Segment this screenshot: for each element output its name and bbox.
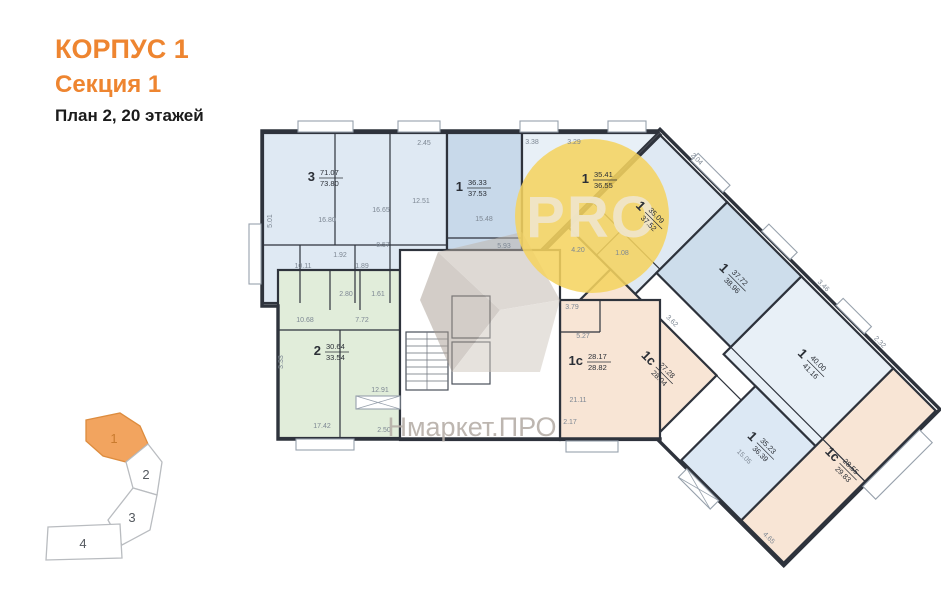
dimension-label: 3.79	[565, 304, 579, 311]
dimension-label: 10.68	[296, 317, 314, 324]
minimap-section-label: 1	[110, 431, 117, 446]
svg-text:71.07: 71.07	[320, 168, 339, 177]
dimension-label: 3.38	[525, 139, 539, 146]
page-root: КОРПУС 1 Секция 1 План 2, 20 этажей	[0, 0, 941, 600]
dimension-label: 17.42	[313, 423, 331, 430]
balcony	[566, 441, 618, 452]
dimension-label: 8.57	[376, 242, 390, 249]
watermark-pro-text: PRO	[526, 185, 658, 250]
balcony	[520, 121, 558, 132]
floor-plan-svg: PRO 1 35.09 37.52 1 37.72 38.96 1 40.00 …	[0, 0, 941, 600]
minimap-section-label: 4	[79, 536, 86, 551]
balcony	[398, 121, 440, 132]
dimension-label: 7.72	[355, 317, 369, 324]
svg-text:33.54: 33.54	[326, 353, 345, 362]
svg-text:1с: 1с	[569, 353, 583, 368]
svg-text:3: 3	[308, 169, 315, 184]
balcony	[298, 121, 353, 132]
svg-text:1: 1	[456, 179, 463, 194]
dimension-label: 21.11	[570, 397, 587, 404]
dimension-label: 10.11	[295, 263, 312, 270]
dimension-label: 12.51	[412, 198, 430, 205]
svg-text:28.17: 28.17	[588, 352, 607, 361]
dimension-label: 16.65	[372, 207, 390, 214]
minimap: 1 2 3 4	[46, 413, 162, 560]
svg-text:73.80: 73.80	[320, 179, 339, 188]
svg-text:36.33: 36.33	[468, 178, 487, 187]
dimension-label: 12.91	[371, 387, 389, 394]
dimension-label: 1.08	[615, 250, 629, 257]
dimension-label: 2.45	[417, 140, 431, 147]
svg-text:36.55: 36.55	[594, 181, 613, 190]
dimension-label: 4.20	[571, 247, 585, 254]
svg-text:1: 1	[582, 171, 589, 186]
svg-text:2: 2	[314, 343, 321, 358]
balcony	[249, 224, 261, 284]
svg-text:28.82: 28.82	[588, 363, 607, 372]
dimension-label: 15.48	[475, 216, 493, 223]
svg-text:37.53: 37.53	[468, 189, 487, 198]
dimension-label: 1.92	[333, 252, 347, 259]
dimension-label: 1.89	[355, 263, 369, 270]
dimension-label: 2.80	[339, 291, 353, 298]
minimap-section-label: 3	[128, 510, 135, 525]
balcony	[296, 439, 354, 450]
svg-text:35.41: 35.41	[594, 170, 613, 179]
dimension-label: 5.93	[497, 243, 511, 250]
dimension-label: 1.61	[371, 291, 385, 298]
dimension-label: 3.33	[278, 355, 285, 369]
dimension-label: 5.27	[576, 333, 590, 340]
watermark-brand-text: Нмаркет.ПРО	[387, 412, 556, 442]
dimension-label: 3.29	[567, 139, 581, 146]
svg-text:30.64: 30.64	[326, 342, 345, 351]
dimension-label: 16.80	[318, 217, 336, 224]
dimension-label: 5.01	[267, 214, 274, 228]
minimap-section-label: 2	[142, 467, 149, 482]
dimension-label: 2.17	[563, 419, 577, 426]
balcony	[608, 121, 646, 132]
